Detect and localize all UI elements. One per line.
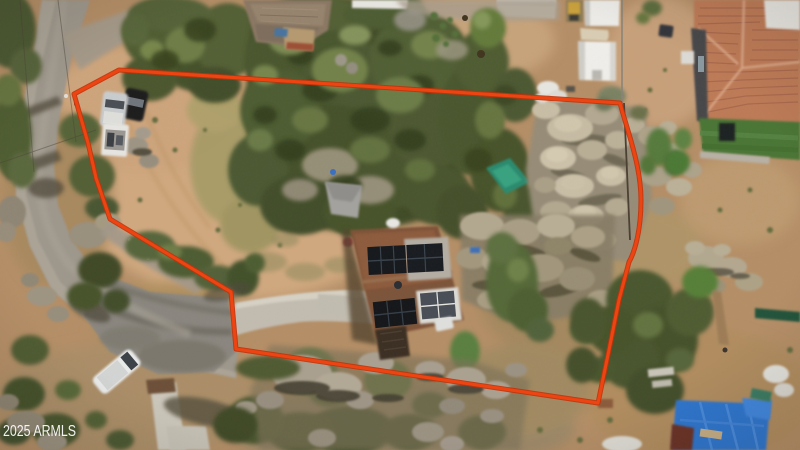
svg-text:2025 ARMLS: 2025 ARMLS [3, 423, 76, 440]
